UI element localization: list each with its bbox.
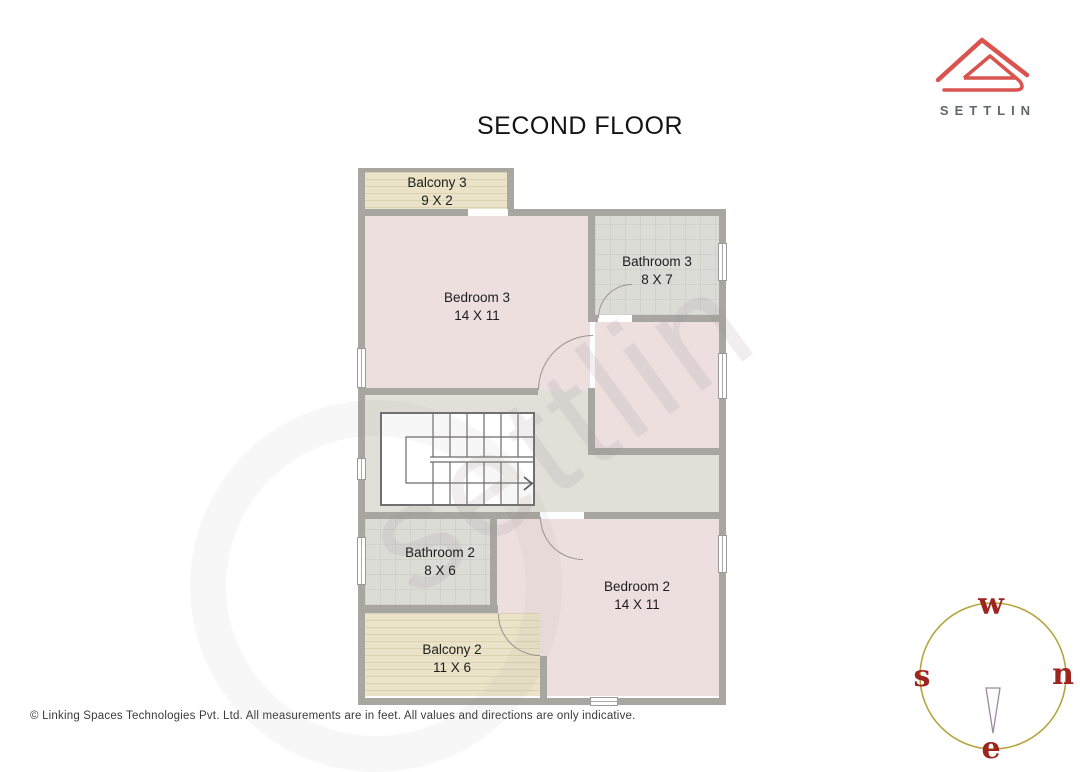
compass-needle-icon: [986, 688, 1000, 733]
wall-left: [358, 168, 365, 705]
compass-east: e: [981, 731, 1000, 764]
wall-bottom: [358, 698, 726, 705]
room-name: Bathroom 2: [370, 544, 510, 562]
wall-bath2-balcony2: [365, 605, 498, 613]
label-balcony-3: Balcony 3 9 X 2: [377, 174, 497, 210]
label-bedroom-2: Bedroom 2 14 X 11: [557, 578, 717, 614]
compass-south: s: [914, 659, 931, 694]
door-gap-balcony3: [468, 209, 508, 216]
room-size: 14 X 11: [557, 596, 717, 614]
label-bedroom-3: Bedroom 3 14 X 11: [397, 289, 557, 325]
room-name: Bedroom 3: [397, 289, 557, 307]
window-bedroom2-bottom: [590, 697, 618, 706]
label-bathroom-2: Bathroom 2 8 X 6: [370, 544, 510, 580]
compass-west: w: [977, 587, 1005, 622]
room-bedroom-3-ext: [595, 322, 719, 448]
window-hall-left: [357, 458, 366, 480]
wall-bed3-hall: [365, 388, 538, 395]
room-size: 14 X 11: [397, 307, 557, 325]
brand-logo: SETTLIN: [925, 28, 1045, 118]
page-title: SECOND FLOOR: [420, 112, 740, 141]
footer-disclaimer: © Linking Spaces Technologies Pvt. Ltd. …: [30, 710, 636, 722]
staircase: [380, 412, 535, 506]
wall-balcony2-right: [540, 656, 547, 698]
window-bathroom2-left: [357, 537, 366, 585]
window-bedroom3-ext-right: [718, 353, 727, 399]
room-name: Balcony 2: [372, 641, 532, 659]
settlin-roof-icon: [930, 28, 1040, 96]
room-size: 8 X 7: [587, 271, 727, 289]
brand-name: SETTLIN: [925, 103, 1045, 118]
label-bathroom-3: Bathroom 3 8 X 7: [587, 253, 727, 289]
room-name: Balcony 3: [377, 174, 497, 192]
room-size: 11 X 6: [372, 659, 532, 677]
staircase-drawing: [380, 412, 535, 506]
wall-balcony3-top: [358, 168, 514, 172]
window-bedroom2-right: [718, 535, 727, 573]
room-name: Bathroom 3: [587, 253, 727, 271]
wall-hall-ext: [588, 388, 595, 455]
room-size: 9 X 2: [377, 192, 497, 210]
window-bedroom3-left: [357, 348, 366, 388]
wall-ext-bottom: [595, 448, 719, 455]
label-balcony-2: Balcony 2 11 X 6: [372, 641, 532, 677]
hallway-right: [588, 455, 719, 512]
compass-rose: w s n e: [905, 578, 1080, 769]
wall-top: [358, 209, 726, 216]
compass-north: n: [1052, 657, 1074, 692]
room-name: Bedroom 2: [557, 578, 717, 596]
room-size: 8 X 6: [370, 562, 510, 580]
